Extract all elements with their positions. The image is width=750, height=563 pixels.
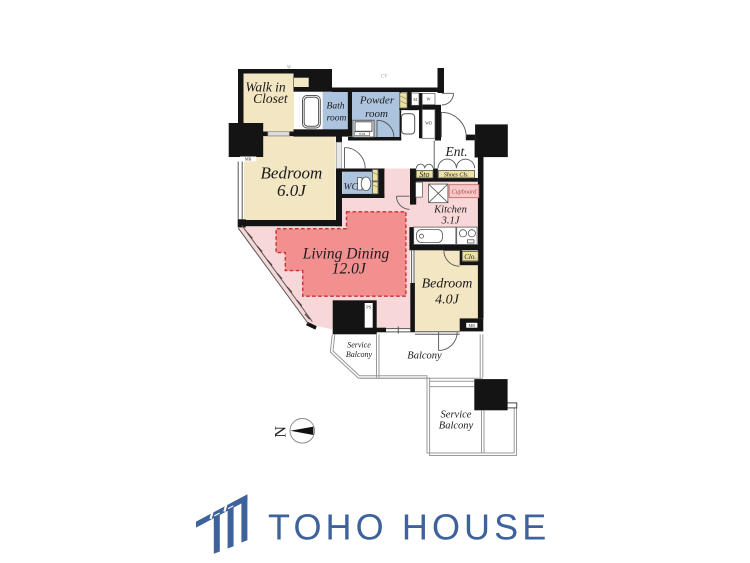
svg-text:M: M bbox=[413, 97, 417, 102]
svg-text:4.0J: 4.0J bbox=[435, 293, 460, 308]
svg-text:Service: Service bbox=[441, 409, 472, 420]
svg-text:Closet: Closet bbox=[253, 91, 289, 106]
svg-text:6.0J: 6.0J bbox=[277, 181, 307, 200]
svg-text:N: N bbox=[273, 426, 290, 438]
svg-text:PS: PS bbox=[366, 305, 372, 310]
svg-text:MB: MB bbox=[469, 323, 476, 328]
svg-text:room: room bbox=[365, 108, 388, 120]
svg-text:Ent.: Ent. bbox=[445, 144, 468, 159]
svg-text:WM: WM bbox=[359, 132, 365, 136]
svg-text:MB: MB bbox=[245, 157, 252, 162]
svg-text:W: W bbox=[427, 97, 431, 102]
svg-text:Kitchen: Kitchen bbox=[433, 204, 467, 215]
svg-text:Clo.: Clo. bbox=[464, 253, 476, 261]
svg-text:Balcony: Balcony bbox=[439, 420, 474, 431]
svg-text:WC: WC bbox=[344, 183, 359, 193]
svg-text:Balcony: Balcony bbox=[407, 351, 442, 362]
svg-text:Sto: Sto bbox=[419, 170, 429, 179]
svg-text:Cupboard: Cupboard bbox=[451, 189, 477, 196]
svg-text:Shoes Cls.: Shoes Cls. bbox=[444, 173, 469, 179]
svg-text:Bath: Bath bbox=[327, 102, 345, 112]
svg-text:Bedroom: Bedroom bbox=[422, 277, 473, 292]
svg-text:CV: CV bbox=[381, 75, 388, 80]
svg-text:WD: WD bbox=[425, 121, 432, 126]
svg-text:room: room bbox=[327, 113, 347, 123]
svg-text:TOHO HOUSE: TOHO HOUSE bbox=[268, 507, 550, 548]
svg-text:Service: Service bbox=[347, 341, 371, 350]
svg-text:Bedroom: Bedroom bbox=[261, 164, 323, 183]
svg-text:12.0J: 12.0J bbox=[332, 261, 367, 278]
svg-text:Powder: Powder bbox=[359, 95, 395, 107]
svg-text:3.1J: 3.1J bbox=[441, 216, 461, 227]
svg-text:Balcony: Balcony bbox=[346, 350, 373, 359]
